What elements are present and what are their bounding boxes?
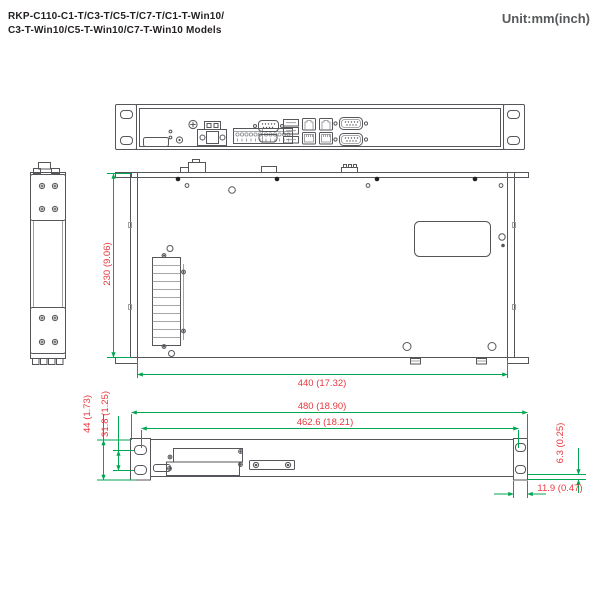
front-slot xyxy=(144,138,169,147)
screw-icon xyxy=(176,177,181,182)
vent-hole xyxy=(229,187,236,194)
dimension-label-depth: 230 (9.06) xyxy=(102,242,113,285)
bottom-left-ear xyxy=(131,439,151,481)
dimension-mounting-span: 462.6 (18.21) xyxy=(142,417,519,448)
screw-icon xyxy=(52,315,57,320)
screw-icon xyxy=(375,177,380,182)
serial-port-icon xyxy=(334,118,368,130)
screw-icon xyxy=(473,177,478,182)
dimension-ear-depth: 11.9 (0.47) xyxy=(494,481,583,498)
dimension-label-overall-width: 480 (18.90) xyxy=(298,401,347,412)
dimension-ear-hole-spacing: 31.8 (1.25) xyxy=(100,391,134,470)
hole xyxy=(403,343,411,351)
status-leds-icon xyxy=(169,130,172,139)
small-plate xyxy=(250,461,295,470)
screw-icon xyxy=(168,455,172,459)
top-view xyxy=(116,160,529,365)
screw-icon xyxy=(39,206,44,211)
dimension-chassis-width: 440 (17.32) xyxy=(138,360,508,389)
ear-hole xyxy=(121,111,133,119)
bottom-body xyxy=(151,440,514,477)
power-terminal-icon xyxy=(198,122,227,146)
screw-icon xyxy=(162,254,166,258)
side-foot xyxy=(33,359,40,365)
label-cutout-icon xyxy=(415,222,491,257)
rear-connectors xyxy=(181,160,358,173)
vent-hole xyxy=(185,184,189,188)
side-body xyxy=(31,173,66,359)
bottom-right-flange xyxy=(508,358,529,364)
ear-hole xyxy=(516,466,526,474)
screw-icon xyxy=(501,244,505,248)
dimension-depth: 230 (9.06) xyxy=(102,174,131,358)
lan-ports-icon xyxy=(303,119,333,145)
screw-icon xyxy=(52,339,57,344)
dimension-label-hole-edge-offset: 6.3 (0.25) xyxy=(555,423,566,464)
power-button-icon xyxy=(176,137,182,143)
serial-port-icon xyxy=(334,134,368,146)
heatsink-icon xyxy=(153,246,186,357)
access-plates xyxy=(167,449,243,476)
bottom-left-flange xyxy=(116,358,138,364)
technical-drawing: 230 (9.06) 440 (17.32) 480 (18.90) 462.6… xyxy=(0,0,600,600)
screw-icon xyxy=(239,450,243,454)
hole xyxy=(488,343,496,351)
bottom-tabs xyxy=(411,359,487,365)
ear-hole xyxy=(121,137,133,145)
front-panel-view xyxy=(116,105,525,150)
top-body xyxy=(131,173,515,358)
screw-icon xyxy=(39,183,44,188)
dimension-label-mounting-span: 462.6 (18.21) xyxy=(297,417,354,428)
ear-hole xyxy=(508,137,520,145)
bottom-front-view xyxy=(131,439,528,481)
side-bottom-plate xyxy=(31,308,66,354)
grounding-screw-icon xyxy=(189,120,197,128)
ear-hole xyxy=(508,111,520,119)
screw-icon xyxy=(39,315,44,320)
hole xyxy=(499,234,505,240)
side-foot xyxy=(41,359,48,365)
dimension-label-ear-hole-spacing: 31.8 (1.25) xyxy=(100,391,111,437)
front-right-ear xyxy=(504,105,525,150)
ear-hole xyxy=(135,446,147,455)
ear-hole xyxy=(135,466,147,475)
dimension-label-front-height: 44 (1.73) xyxy=(82,395,93,433)
screw-icon xyxy=(52,206,57,211)
dimension-label-ear-depth: 11.9 (0.47) xyxy=(537,483,582,494)
screw-icon xyxy=(52,183,57,188)
vent-hole xyxy=(366,184,370,188)
dimension-label-chassis-width: 440 (17.32) xyxy=(298,378,347,389)
side-foot xyxy=(57,359,64,365)
ear-hole xyxy=(516,444,526,452)
screw-icon xyxy=(275,177,280,182)
front-left-ear xyxy=(116,105,137,150)
top-right-flange xyxy=(515,173,529,178)
vga-port-icon xyxy=(254,121,284,132)
screw-icon xyxy=(39,339,44,344)
vent-hole xyxy=(499,184,503,188)
side-foot xyxy=(49,359,56,365)
side-top-plate xyxy=(31,175,66,221)
side-view xyxy=(31,163,66,365)
